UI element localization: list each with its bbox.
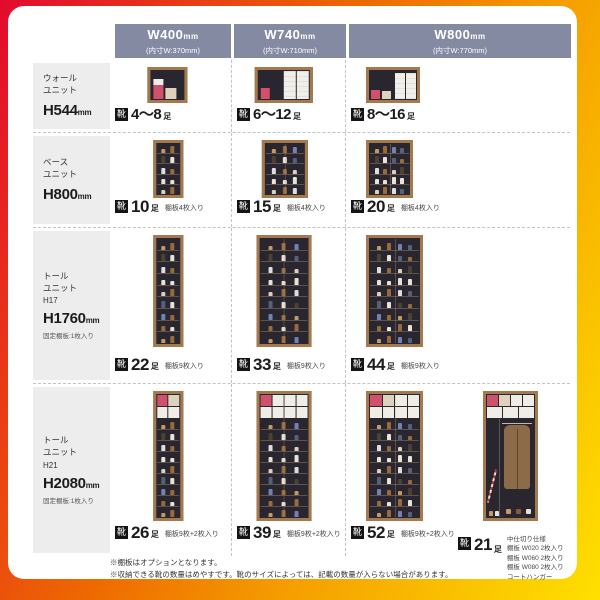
spec-table: ウォール ユニット H544mm 靴 4〜8 足 bbox=[33, 60, 570, 556]
cell-w740-tall21: 靴 39 足 棚板9枚+2枚入り bbox=[231, 384, 345, 556]
header-w740: W740mm (内寸W:710mm) bbox=[234, 24, 346, 58]
cell-w800-tall21: 靴 52 足 棚板9枚+2枚入り bbox=[345, 384, 569, 556]
cabinet-image bbox=[147, 67, 187, 103]
capacity-label: 靴 20 足 棚板4枚入り bbox=[351, 200, 440, 214]
shoe-badge-icon: 靴 bbox=[237, 108, 250, 121]
capacity-label: 靴 26 足 棚板9枚+2枚入り bbox=[115, 526, 219, 540]
capacity-label: 靴 10 足 棚板4枚入り bbox=[115, 200, 204, 214]
coat-hanger-zone bbox=[500, 419, 534, 517]
cabinet-image bbox=[153, 235, 183, 347]
cabinet-image bbox=[256, 235, 311, 347]
footnote-1: ※棚板はオプションとなります。 bbox=[110, 557, 452, 569]
cabinet-image bbox=[153, 391, 183, 521]
row-label-wall-unit: ウォール ユニット H544mm bbox=[33, 63, 110, 129]
cabinet-image bbox=[256, 391, 311, 521]
cell-w800-base: 靴 20 足 棚板4枚入り bbox=[345, 133, 569, 227]
header-w400-title: W400mm bbox=[115, 28, 231, 44]
cell-w740-wall: 靴 6〜12 足 bbox=[231, 60, 345, 132]
row-base-unit: ベース ユニット H800mm 靴 10 足 棚板4枚入り bbox=[33, 133, 570, 228]
catalog-page: W400mm (内寸W:370mm) W740mm (内寸W:710mm) W8… bbox=[0, 0, 600, 600]
shoe-badge-icon: 靴 bbox=[115, 200, 128, 213]
capacity-label-coat: 靴 21 足 中仕切り仕様 棚板 W020 2枚入り 棚板 W060 2枚入り … bbox=[458, 535, 564, 582]
shoe-badge-icon: 靴 bbox=[237, 526, 250, 539]
capacity-label: 靴 22 足 棚板9枚入り bbox=[115, 358, 204, 372]
cell-w800-tall17: 靴 44 足 棚板9枚入り bbox=[345, 228, 569, 383]
header-w740-title: W740mm bbox=[234, 28, 346, 44]
shoe-badge-icon: 靴 bbox=[351, 200, 364, 213]
header-w800: W800mm (内寸W:770mm) bbox=[349, 24, 571, 58]
spec-sheet: W400mm (内寸W:370mm) W740mm (内寸W:710mm) W8… bbox=[8, 6, 577, 579]
cabinet-image bbox=[366, 140, 413, 198]
header-w800-inner: (内寸W:770mm) bbox=[349, 45, 571, 56]
umbrella-strip bbox=[487, 419, 500, 517]
cabinet-image bbox=[366, 391, 423, 521]
capacity-label: 靴 33 足 棚板9枚入り bbox=[237, 358, 326, 372]
shoe-badge-icon: 靴 bbox=[237, 358, 250, 371]
row-tall-unit-h21: トール ユニット H21 H2080mm 固定棚板:1枚入り 靴 26 足 bbox=[33, 384, 570, 556]
capacity-label: 靴 8〜16 足 bbox=[351, 108, 415, 122]
cabinet-image bbox=[366, 67, 420, 103]
capacity-label: 靴 4〜8 足 bbox=[115, 108, 171, 122]
cabinet-image bbox=[153, 140, 183, 198]
capacity-label: 靴 39 足 棚板9枚+2枚入り bbox=[237, 526, 341, 540]
shoe-badge-icon: 靴 bbox=[351, 108, 364, 121]
row-tall-unit-h17: トール ユニット H17 H1760mm 固定棚板:1枚入り 靴 22 足 棚板… bbox=[33, 228, 570, 384]
header-w400: W400mm (内寸W:370mm) bbox=[115, 24, 231, 58]
row-wall-unit: ウォール ユニット H544mm 靴 4〜8 足 bbox=[33, 60, 570, 133]
footnote-2: ※収納できる靴の数量はめやすです。靴のサイズによっては、記載の数量が入らない場合… bbox=[110, 569, 452, 581]
header-w800-title: W800mm bbox=[349, 28, 571, 44]
cabinet-image bbox=[366, 235, 423, 347]
header-w400-inner: (内寸W:370mm) bbox=[115, 45, 231, 56]
cell-w740-tall17: 靴 33 足 棚板9枚入り bbox=[231, 228, 345, 383]
row-label-tall-h21: トール ユニット H21 H2080mm 固定棚板:1枚入り bbox=[33, 387, 110, 553]
shoe-badge-icon: 靴 bbox=[115, 358, 128, 371]
row-label-tall-h17: トール ユニット H17 H1760mm 固定棚板:1枚入り bbox=[33, 231, 110, 380]
shoe-badge-icon: 靴 bbox=[115, 108, 128, 121]
capacity-label: 靴 44 足 棚板9枚入り bbox=[351, 358, 440, 372]
shoe-badge-icon: 靴 bbox=[351, 526, 364, 539]
cell-w400-base: 靴 10 足 棚板4枚入り bbox=[110, 133, 231, 227]
hanger-bar-icon bbox=[502, 423, 532, 424]
cabinet-image bbox=[261, 140, 307, 198]
shoe-badge-icon: 靴 bbox=[458, 537, 471, 550]
row-label-base-unit: ベース ユニット H800mm bbox=[33, 136, 110, 224]
coat-icon bbox=[504, 425, 530, 489]
cell-w740-base: 靴 15 足 棚板4枚入り bbox=[231, 133, 345, 227]
width-header-row: W400mm (内寸W:370mm) W740mm (内寸W:710mm) W8… bbox=[115, 24, 571, 58]
shoe-badge-icon: 靴 bbox=[115, 526, 128, 539]
footnotes: ※棚板はオプションとなります。 ※収納できる靴の数量はめやすです。靴のサイズによ… bbox=[110, 557, 452, 581]
cabinet-image-coat bbox=[483, 391, 538, 521]
shoe-badge-icon: 靴 bbox=[237, 200, 250, 213]
cell-w400-wall: 靴 4〜8 足 bbox=[110, 60, 231, 132]
capacity-label: 靴 15 足 棚板4枚入り bbox=[237, 200, 326, 214]
capacity-label: 靴 6〜12 足 bbox=[237, 108, 301, 122]
capacity-label: 靴 52 足 棚板9枚+2枚入り bbox=[351, 526, 455, 540]
shoe-badge-icon: 靴 bbox=[351, 358, 364, 371]
cell-w400-tall21: 靴 26 足 棚板9枚+2枚入り bbox=[110, 384, 231, 556]
header-w740-inner: (内寸W:710mm) bbox=[234, 45, 346, 56]
cell-w800-wall: 靴 8〜16 足 bbox=[345, 60, 569, 132]
cell-w400-tall17: 靴 22 足 棚板9枚入り bbox=[110, 228, 231, 383]
cabinet-image bbox=[254, 67, 312, 103]
umbrella-icon bbox=[487, 469, 497, 502]
